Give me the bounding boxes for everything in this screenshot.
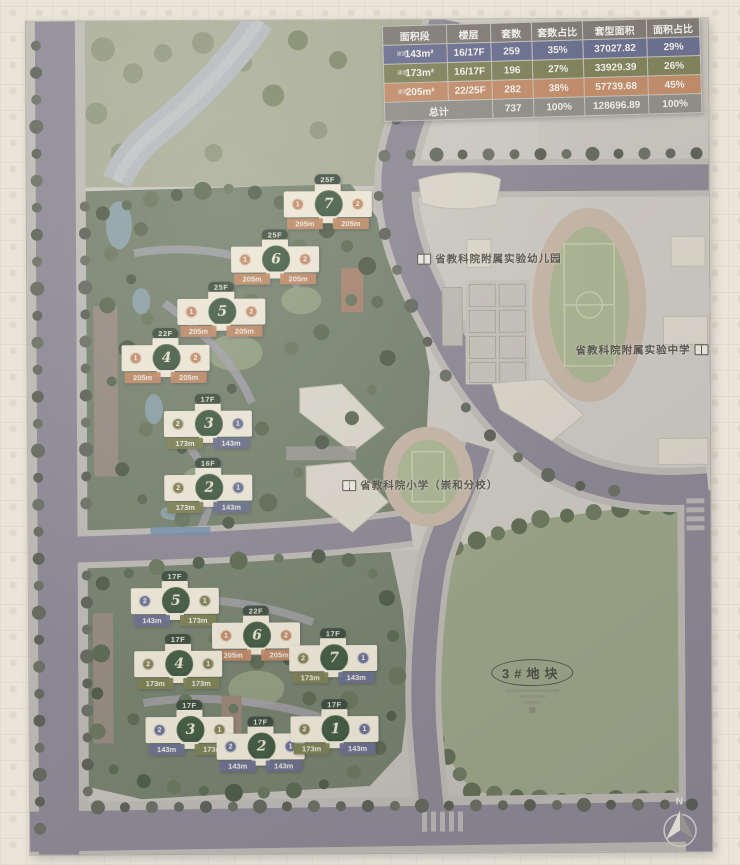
site-plan-board: 面积段 楼层 套数 套数占比 套型面积 面积占比 建面143m² 16/17F … [26, 18, 712, 855]
unit-number-badge: 1 [359, 723, 371, 735]
table-total-label: 总计 [385, 100, 492, 121]
building-number-badge: 4 [165, 650, 193, 678]
building-number-badge: 6 [262, 245, 290, 273]
unit-area-label: 205m [226, 326, 262, 337]
unit-area-label: 205m [171, 372, 207, 383]
area-statistics-table: 面积段 楼层 套数 套数占比 套型面积 面积占比 建面143m² 16/17F … [382, 18, 703, 122]
small-text-line [505, 689, 559, 692]
building: 17F 2 7 1 173m 143m [289, 645, 377, 671]
unit-number-badge: 1 [292, 198, 304, 210]
table-header: 套型面积 [583, 20, 646, 40]
building-number-badge: 7 [315, 190, 343, 218]
table-header: 面积占比 [647, 18, 699, 37]
unit-area-label: 143m [338, 672, 374, 683]
unit-number-badge: 2 [280, 629, 292, 641]
building-number-badge: 3 [195, 410, 223, 438]
building-number-badge: 5 [162, 587, 190, 615]
plot3-label: 3#地块 [467, 659, 597, 714]
unit-number-badge: 2 [142, 658, 154, 670]
table-cell: 100% [534, 97, 584, 116]
unit-area-label: 173m [292, 672, 328, 683]
building-number-badge: 4 [153, 344, 181, 372]
building-footprint: 1 6 2 [212, 622, 300, 648]
small-text-line [524, 701, 540, 704]
table-cell: 建面205m² [384, 82, 447, 102]
unit-number-badge: 1 [357, 652, 369, 664]
unit-area-label: 143m [340, 743, 376, 754]
unit-area-label: 143m [213, 438, 249, 449]
table-header: 面积段 [383, 25, 446, 45]
building: 17F 2 5 1 143m 173m [131, 588, 219, 614]
building: 25F 1 7 2 205m 205m [284, 191, 372, 217]
unit-area-label: 173m [180, 615, 216, 626]
building-number-badge: 6 [243, 622, 271, 650]
building-footprint: 1 4 2 [122, 345, 210, 371]
unit-number-badge: 2 [299, 723, 311, 735]
unit-number-badge: 1 [130, 352, 142, 364]
unit-area-label: 143m [213, 502, 249, 513]
unit-number-badge: 1 [220, 630, 232, 642]
table-cell: 29% [647, 37, 699, 56]
table-cell: 建面143m² [383, 44, 446, 64]
unit-area-label: 143m [149, 744, 185, 755]
table-cell: 128696.89 [585, 96, 648, 116]
building: 25F 1 5 2 205m 205m [177, 299, 265, 325]
table-cell: 100% [649, 94, 701, 113]
unit-number-badge: 1 [232, 482, 244, 494]
building: 25F 1 6 2 205m 205m [231, 246, 319, 272]
kindergarten-label: 省教科院附属实验幼儿园 [417, 251, 562, 267]
building: 17F 2 4 1 173m 173m [134, 651, 222, 677]
unit-number-badge: 1 [232, 418, 244, 430]
unit-number-badge: 1 [202, 658, 214, 670]
unit-number-badge: 2 [352, 198, 364, 210]
building-footprint: 1 7 2 [284, 191, 372, 217]
unit-area-label: 173m [183, 678, 219, 689]
building-number-badge: 7 [320, 644, 348, 672]
building: 17F 2 3 1 173m 143m [164, 411, 252, 437]
building-number-badge: 3 [176, 716, 204, 744]
unit-number-badge: 2 [245, 306, 257, 318]
table-cell: 22/25F [448, 81, 491, 100]
unit-number-badge: 1 [199, 595, 211, 607]
building: 17F 2 1 1 173m 143m [290, 716, 378, 742]
unit-number-badge: 2 [172, 418, 184, 430]
table-cell: 16/17F [448, 62, 491, 81]
table-cell: 282 [492, 80, 532, 99]
building: 22F 1 4 2 205m 205m [122, 345, 210, 371]
unit-area-label: 205m [287, 218, 323, 229]
building-footprint: 2 7 1 [289, 645, 377, 671]
unit-area-label: 173m [167, 502, 203, 513]
unit-number-badge: 2 [299, 253, 311, 265]
unit-number-badge: 2 [297, 652, 309, 664]
school-icon [342, 480, 356, 491]
unit-number-badge: 2 [172, 482, 184, 494]
unit-number-badge: 2 [225, 741, 237, 753]
school-icon [417, 254, 431, 265]
school-icon [695, 344, 709, 355]
unit-area-label: 205m [180, 326, 216, 337]
table-cell: 16/17F [447, 43, 490, 62]
building-number-badge: 2 [195, 474, 223, 502]
table-cell: 27% [533, 59, 583, 78]
unit-area-label: 173m [167, 438, 203, 449]
building-footprint: 2 1 1 [290, 716, 378, 742]
middle-school-label: 省教科院附属实验中学 [576, 342, 709, 358]
building: 22F 1 6 2 205m 205m [212, 622, 300, 648]
table-cell: 259 [491, 42, 531, 61]
table-cell: 26% [648, 56, 700, 75]
small-logo [529, 707, 535, 713]
building-number-badge: 1 [321, 715, 349, 743]
unit-area-label: 205m [234, 274, 270, 285]
building-footprint: 2 4 1 [134, 651, 222, 677]
table-cell: 建面173m² [384, 63, 447, 83]
unit-number-badge: 2 [154, 724, 166, 736]
unit-area-label: 173m [294, 743, 330, 754]
unit-area-label: 143m [220, 761, 256, 772]
building: 16F 2 2 1 173m 143m [164, 475, 252, 501]
unit-number-badge: 2 [190, 352, 202, 364]
table-cell: 57739.68 [584, 77, 647, 97]
north-letter: N [660, 796, 700, 807]
unit-number-badge: 1 [185, 306, 197, 318]
table-cell: 737 [493, 99, 533, 118]
building-number-badge: 2 [248, 732, 276, 760]
building-footprint: 1 6 2 [231, 246, 319, 272]
primary-school-label: 省教科院小学（崇和分校） [342, 477, 498, 493]
table-cell: 38% [533, 78, 583, 97]
table-header: 楼层 [447, 24, 490, 43]
table-cell: 37027.82 [583, 39, 646, 59]
unit-area-label: 173m [137, 678, 173, 689]
table-cell: 33929.39 [584, 58, 647, 78]
unit-number-badge: 2 [139, 595, 151, 607]
building-number-badge: 5 [208, 298, 236, 326]
table-cell: 45% [648, 75, 700, 94]
table-header: 套数 [491, 23, 531, 42]
building-footprint: 1 5 2 [177, 299, 265, 325]
building-footprint: 2 2 1 [164, 475, 252, 501]
small-text-line [519, 695, 545, 698]
unit-area-label: 205m [280, 273, 316, 284]
unit-area-label: 143m [266, 760, 302, 771]
building-footprint: 2 3 1 [164, 411, 252, 437]
unit-area-label: 205m [333, 218, 369, 229]
table-cell: 35% [532, 40, 582, 59]
table-header: 套数占比 [532, 21, 582, 40]
unit-number-badge: 1 [239, 254, 251, 266]
table-cell: 196 [492, 61, 532, 80]
building-footprint: 2 5 1 [131, 588, 219, 614]
unit-area-label: 143m [134, 615, 170, 626]
photo-background: { "table": { "headers": ["面积段", "楼层", "套… [0, 0, 740, 865]
unit-area-label: 205m [125, 372, 161, 383]
